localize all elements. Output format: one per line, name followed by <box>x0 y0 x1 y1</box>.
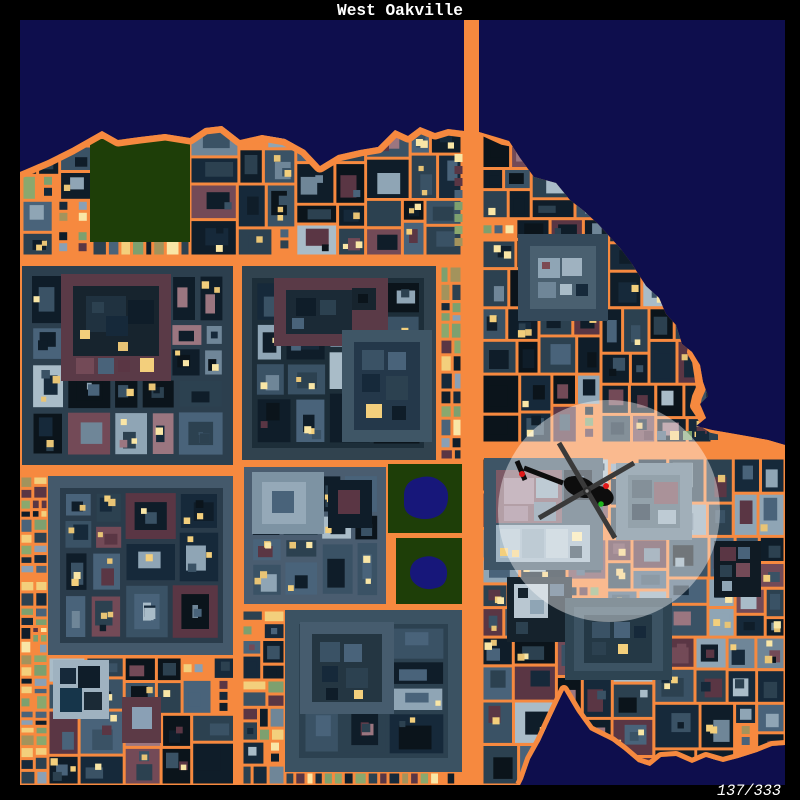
svg-text:West Oakville: West Oakville <box>337 1 463 20</box>
svg-text:137/333: 137/333 <box>717 782 781 800</box>
